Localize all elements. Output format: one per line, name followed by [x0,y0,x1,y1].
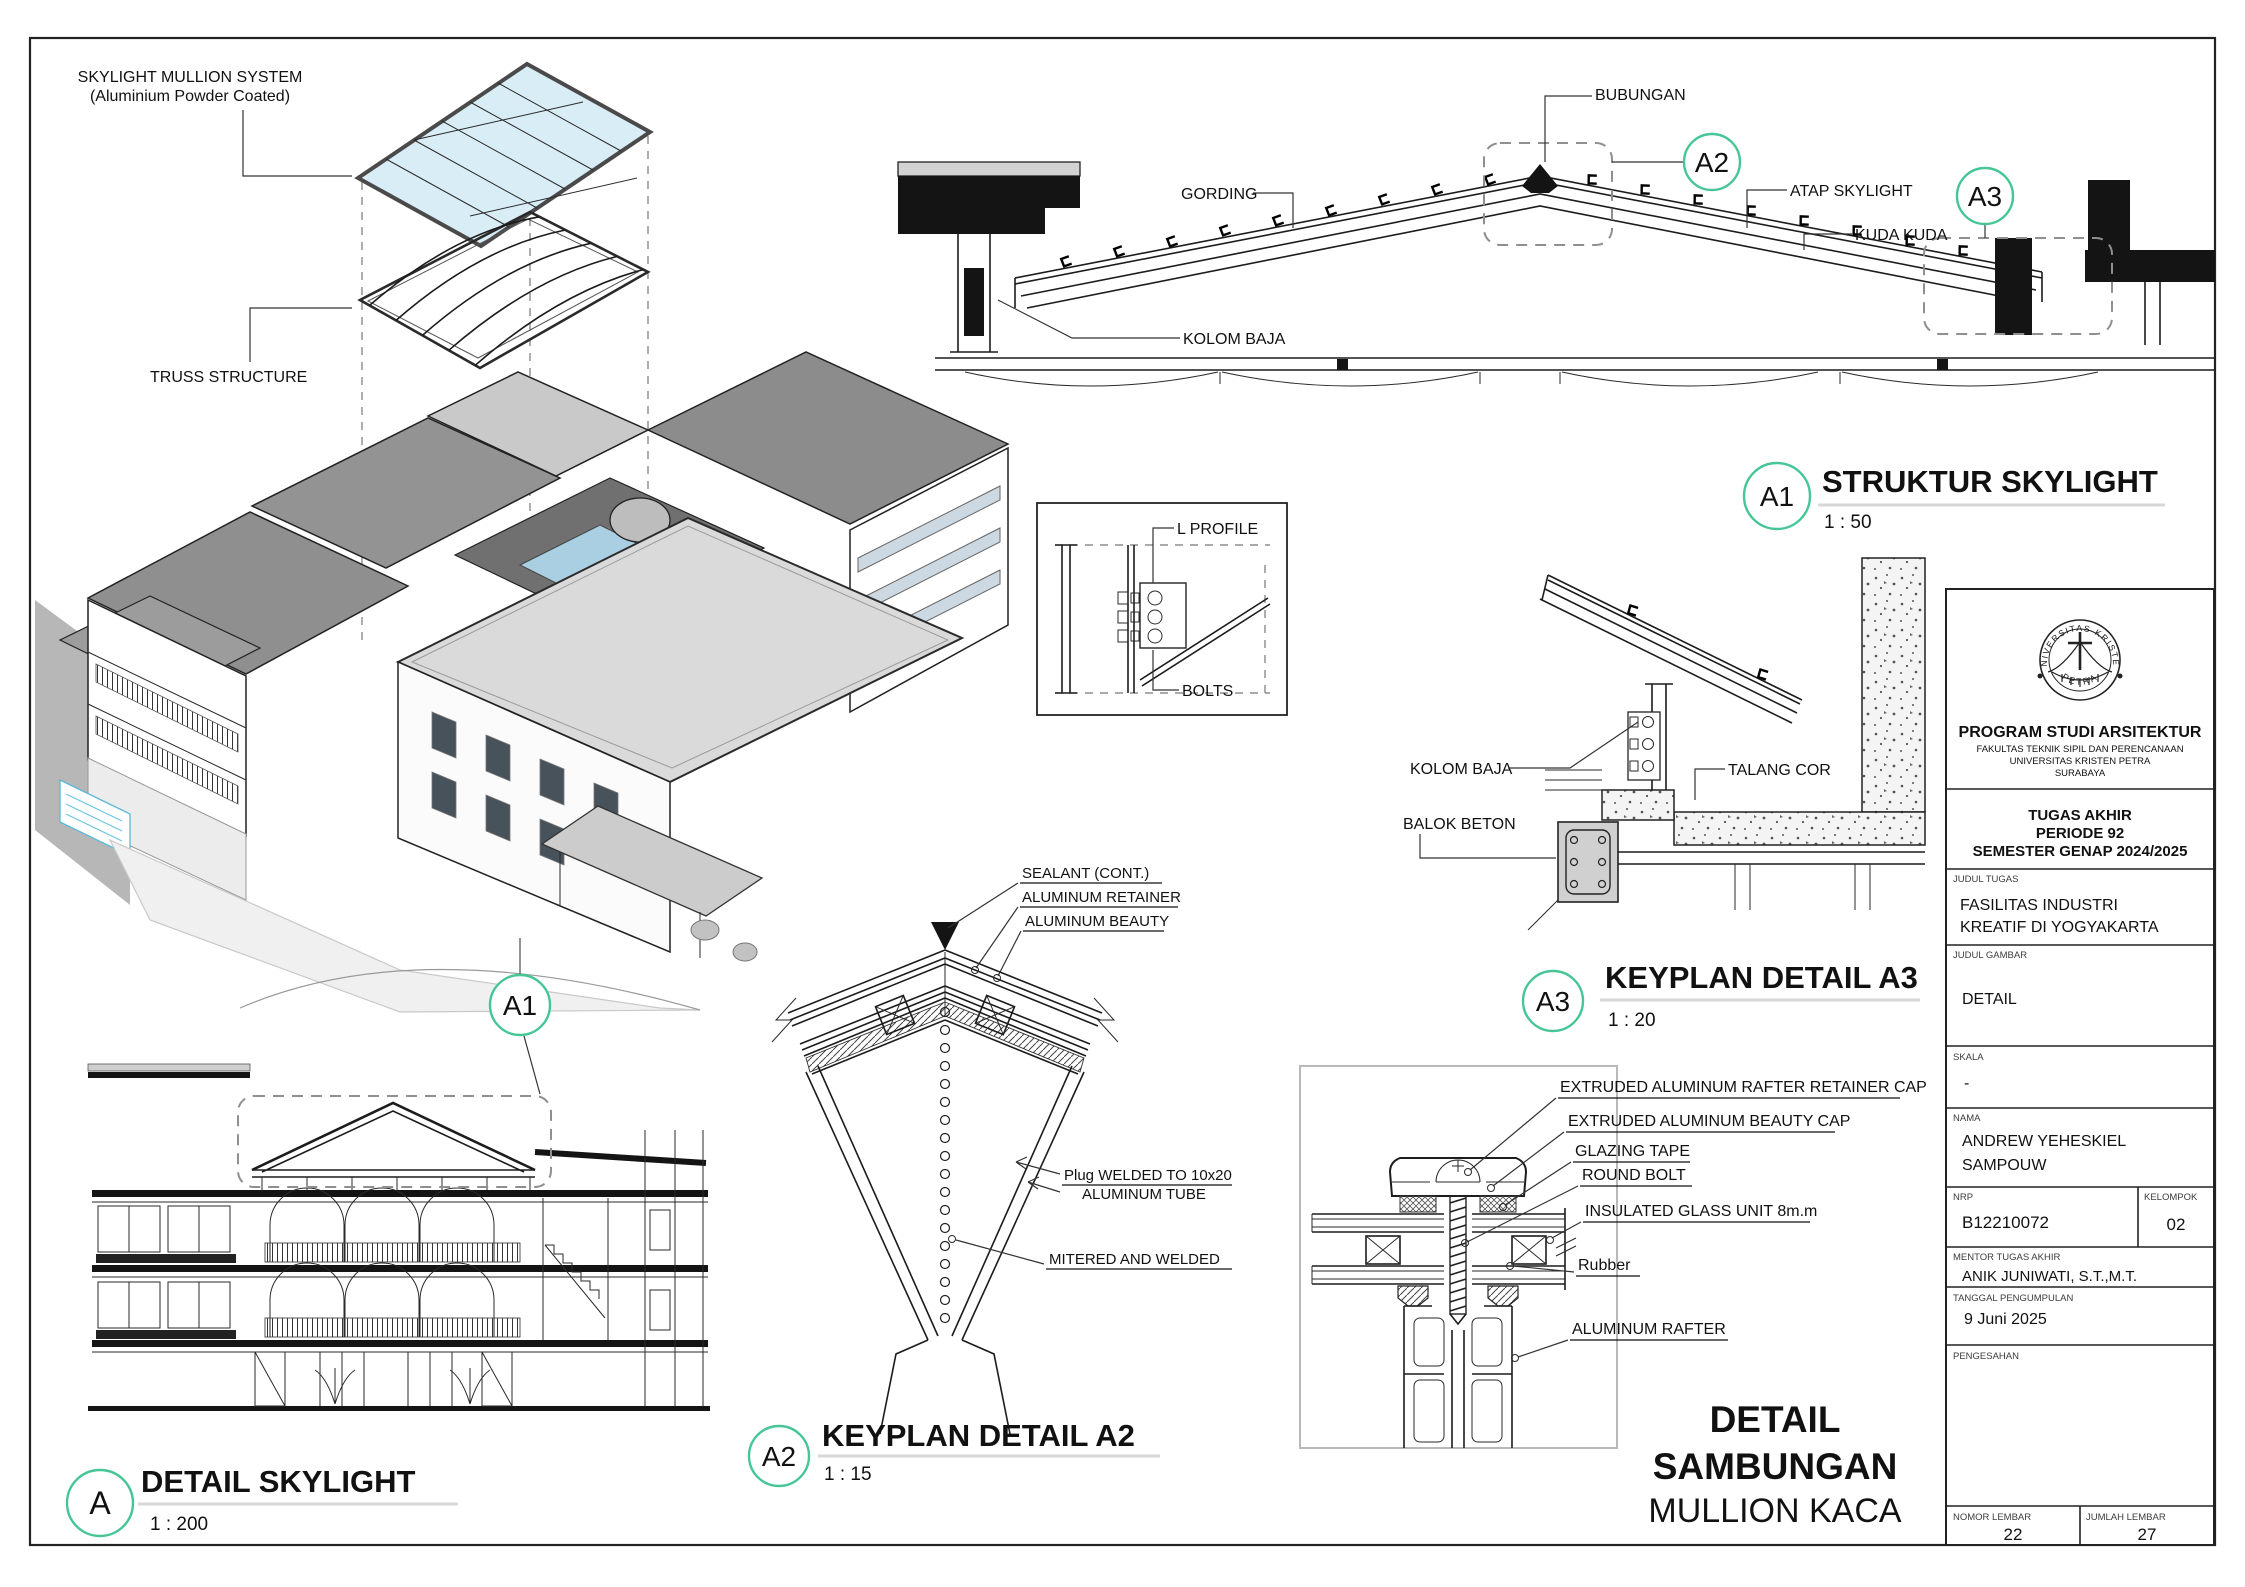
pengesahan-label: PENGESAHAN [1953,1351,2019,1362]
keyplan-a2-title: A2 KEYPLAN DETAIL A2 1 : 15 [749,1418,1160,1486]
judul-tugas-1: FASILITAS INDUSTRI [1960,897,2118,914]
keyplan-a2-drawing: SEALANT (CONT.) ALUMINUM RETAINER ALUMIN… [749,865,1232,1486]
struktur-scale: 1 : 50 [1824,512,1872,533]
mentor-value: ANIK JUNIWATI, S.T.,M.T. [1962,1268,2137,1285]
callout-a3-label: A3 [1968,181,2002,212]
beauty-cap-label: EXTRUDED ALUMINUM BEAUTY CAP [1568,1113,1850,1130]
bubungan-label: BUBUNGAN [1595,87,1686,104]
detail-skylight-scale: 1 : 200 [150,1514,208,1535]
mullion-title-3: MULLION KACA [1648,1492,1901,1530]
kolom-baja-label: KOLOM BAJA [1183,331,1286,348]
judul-gambar-label: JUDUL GAMBAR [1953,950,2027,961]
kota: SURABAYA [2055,768,2106,779]
callout-region-a2 [1484,143,1612,245]
atap-skylight-label: ATAP SKYLIGHT [1790,183,1913,200]
weld-seam [941,1008,950,1323]
building-axonometric [35,352,1008,1012]
mentor-label: MENTOR TUGAS AKHIR [1953,1252,2060,1263]
tanggal-value: 9 Juni 2025 [1964,1311,2047,1328]
tugas-akhir: TUGAS AKHIR [2028,807,2132,824]
keyplan-a2-scale: 1 : 15 [824,1464,872,1485]
nomor-value: 22 [2004,1525,2023,1544]
judul-gambar: DETAIL [1962,991,2017,1008]
struktur-title: STRUKTUR SKYLIGHT [1822,464,2158,499]
semester: SEMESTER GENAP 2024/2025 [1973,843,2188,860]
plug-label-1: Plug WELDED TO 10x20 [1064,1167,1232,1184]
struktur-skylight-title: A1 STRUKTUR SKYLIGHT 1 : 50 [1744,463,2165,533]
fakultas: FAKULTAS TEKNIK SIPIL DAN PERENCANAAN [1976,744,2183,755]
mullion-big-title: DETAIL SAMBUNGAN MULLION KACA [1648,1399,1901,1530]
struktur-marker: A1 [1760,481,1794,512]
l-profile-label: L PROFILE [1177,521,1258,538]
callout-region-a1 [238,1096,551,1187]
nama-1: ANDREW YEHESKIEL [1962,1133,2126,1150]
detail-skylight-marker: A [89,1485,111,1521]
mullion-title-1: DETAIL [1710,1399,1841,1440]
jumlah-label: JUMLAH LEMBAR [2086,1512,2166,1523]
balok-beton-label: BALOK BETON [1403,816,1516,833]
keyplan-a2-marker: A2 [762,1441,796,1472]
keyplan-a3-marker: A3 [1536,986,1570,1017]
drawing-sheet: SKYLIGHT MULLION SYSTEM (Aluminium Powde… [0,0,2245,1587]
kolom-baja-a3-label: KOLOM BAJA [1410,761,1513,778]
skylight-glazing-panel [358,64,650,246]
plug-label-2: ALUMINUM TUBE [1082,1186,1206,1203]
tanggal-label: TANGGAL PENGUMPULAN [1953,1293,2073,1304]
l-profile-detail: L PROFILE BOLTS [1037,503,1287,715]
mullion-detail-drawing: EXTRUDED ALUMINUM RAFTER RETAINER CAP EX… [1300,1066,1927,1530]
judul-tugas-2: KREATIF DI YOGYAKARTA [1960,919,2159,936]
skala-label: SKALA [1953,1052,1984,1063]
insulated-glass-label: INSULATED GLASS UNIT 8m.m [1585,1203,1817,1220]
callout-a1-axon: A1 [490,975,550,1094]
universitas: UNIVERSITAS KRISTEN PETRA [2010,756,2151,767]
callout-a2-label: A2 [1695,147,1729,178]
keyplan-a2-title-text: KEYPLAN DETAIL A2 [822,1418,1135,1453]
kelompok-value: 02 [2167,1215,2186,1234]
program-studi: PROGRAM STUDI ARSITEKTUR [1959,724,2202,741]
mitered-label: MITERED AND WELDED [1049,1251,1220,1268]
round-bolt-label: ROUND BOLT [1582,1167,1686,1184]
jumlah-value: 27 [2138,1525,2157,1544]
sealant-label: SEALANT (CONT.) [1022,865,1149,882]
truss-structure-label: TRUSS STRUCTURE [150,369,307,386]
nrp-label: NRP [1953,1192,1973,1203]
bolts-label: BOLTS [1182,683,1233,700]
skylight-mullion-label: SKYLIGHT MULLION SYSTEM [78,69,303,86]
detail-skylight-title-text: DETAIL SKYLIGHT [141,1464,415,1499]
kelompok-label: KELOMPOK [2144,1192,2198,1203]
skylight-mullion-sublabel: (Aluminium Powder Coated) [90,88,290,105]
detail-skylight-title: A DETAIL SKYLIGHT 1 : 200 [67,1464,458,1536]
keyplan-a3-scale: 1 : 20 [1608,1010,1656,1031]
retainer-cap-label: EXTRUDED ALUMINUM RAFTER RETAINER CAP [1560,1079,1927,1096]
nama-2: SAMPOUW [1962,1157,2047,1174]
mullion-title-2: SAMBUNGAN [1653,1446,1898,1487]
kuda-kuda-label: KUDA KUDA [1855,227,1948,244]
keyplan-a3-title: A3 KEYPLAN DETAIL A3 1 : 20 [1523,960,1920,1031]
struktur-skylight-drawing: BUBUNGAN GORDING ATAP SKYLIGHT KUDA KUDA… [898,87,2215,533]
keyplan-a3-title-text: KEYPLAN DETAIL A3 [1605,960,1918,995]
exploded-axon: SKYLIGHT MULLION SYSTEM (Aluminium Powde… [35,64,1008,1094]
truss-structure [360,212,648,368]
beauty-label: ALUMINUM BEAUTY [1025,913,1169,930]
callout-a1-axon-label: A1 [503,990,537,1021]
keyplan-a3-drawing: KOLOM BAJA TALANG COR BALOK BETON A3 KEY… [1403,558,1925,1031]
judul-tugas-label: JUDUL TUGAS [1953,874,2018,885]
talang-cor-label: TALANG COR [1728,762,1831,779]
skala-value: - [1964,1075,1969,1092]
aluminum-rafter-label: ALUMINUM RAFTER [1572,1321,1726,1338]
retainer-label: ALUMINUM RETAINER [1022,889,1181,906]
nama-label: NAMA [1953,1113,1981,1124]
periode: PERIODE 92 [2036,825,2124,842]
gording-label: GORDING [1181,186,1257,203]
rubber-label: Rubber [1578,1257,1631,1274]
glazing-tape-label: GLAZING TAPE [1575,1143,1690,1160]
building-section: A DETAIL SKYLIGHT 1 : 200 [67,1064,710,1536]
nomor-label: NOMOR LEMBAR [1953,1512,2031,1523]
nrp-value: B12210072 [1962,1213,2049,1232]
